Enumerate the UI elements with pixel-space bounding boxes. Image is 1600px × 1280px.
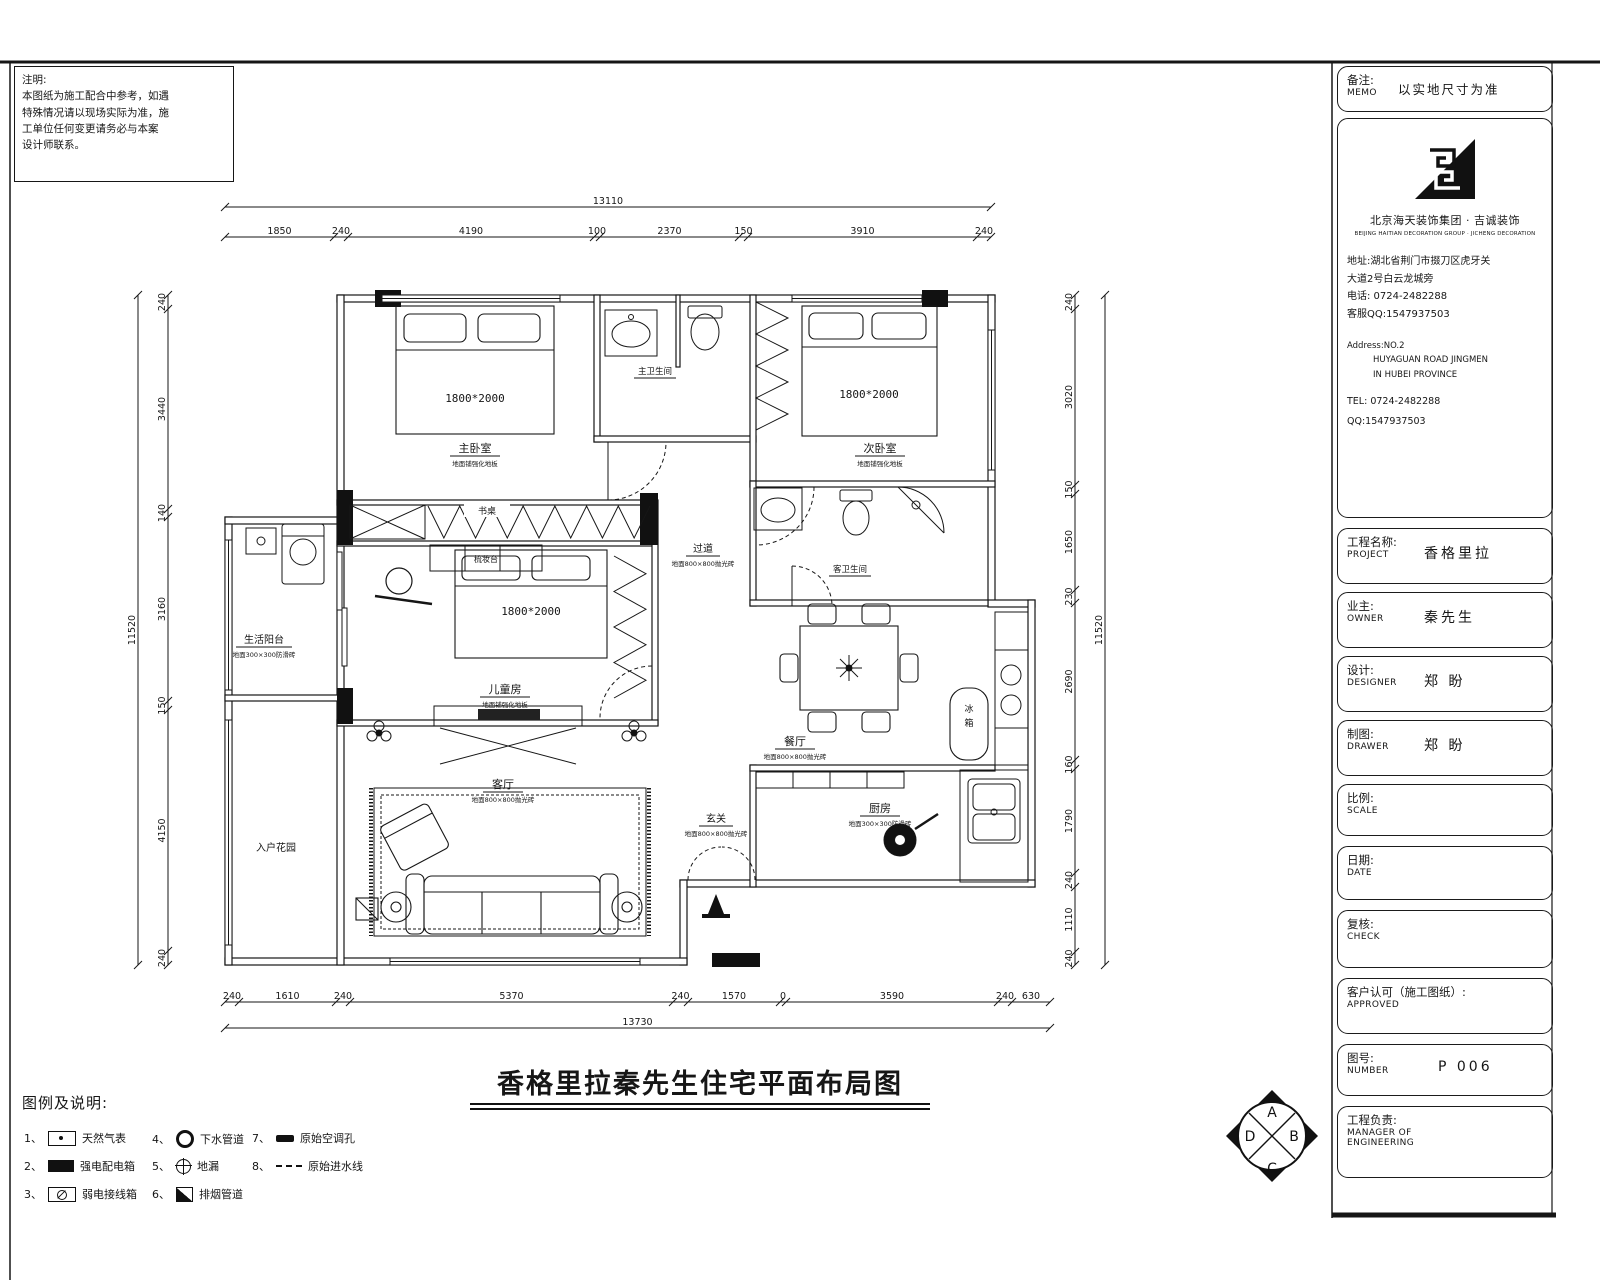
room-note-balcony: 地面300×300防滑砖 bbox=[233, 650, 296, 659]
note-line: 工单位任何变更请务必与本案 bbox=[22, 121, 226, 137]
legend-item-ac-hole: 7、 原始空调孔 bbox=[252, 1130, 355, 1146]
compass-letter-b: B bbox=[1289, 1129, 1299, 1145]
dim-label: 240 bbox=[1064, 293, 1075, 311]
dim-label: 1790 bbox=[1064, 809, 1075, 833]
dim-label: 240 bbox=[1064, 871, 1075, 889]
dim-label: 240 bbox=[996, 991, 1014, 1002]
legend-heading: 图例及说明: bbox=[22, 1092, 108, 1113]
second-bed bbox=[802, 306, 937, 436]
legend-label: 弱电接线箱 bbox=[82, 1186, 137, 1202]
dim-label: 630 bbox=[1022, 991, 1040, 1002]
entry-arrow bbox=[702, 894, 730, 918]
manager-label-en: ENGINEERING bbox=[1347, 1138, 1543, 1148]
room-label-master-bath: 主卫生间 bbox=[638, 366, 672, 377]
weak-current-icon bbox=[48, 1187, 76, 1202]
legend-label: 强电配电箱 bbox=[80, 1158, 135, 1174]
dim-label: 3020 bbox=[1064, 385, 1075, 409]
scale-label-cn: 比例: bbox=[1347, 790, 1543, 806]
dim-label: 3160 bbox=[157, 597, 168, 621]
dim-label: 4150 bbox=[157, 818, 168, 842]
dim-label: 13730 bbox=[622, 1017, 652, 1028]
legend-no: 6、 bbox=[152, 1186, 170, 1202]
dim-label: 230 bbox=[1064, 587, 1075, 605]
note-line: 特殊情况请以现场实际为准，施 bbox=[22, 105, 226, 121]
dresser-label: 梳妆台 bbox=[474, 554, 498, 564]
hall-cabinet bbox=[995, 612, 1028, 765]
compass-letter-a: A bbox=[1267, 1105, 1277, 1121]
room-label-second: 次卧室 bbox=[864, 441, 897, 455]
compass-letter-d: D bbox=[1245, 1129, 1256, 1145]
date-label-cn: 日期: bbox=[1347, 852, 1543, 868]
stool-mirror bbox=[375, 568, 432, 604]
bookshelf-desk bbox=[350, 505, 425, 539]
dim-label: 1570 bbox=[722, 991, 746, 1002]
room-label-master: 主卧室 bbox=[459, 441, 492, 455]
company-name-en: BEIJING HAITIAN DECORATION GROUP · JICHE… bbox=[1347, 231, 1543, 237]
drawer-value: 郑 盼 bbox=[1424, 735, 1465, 755]
dim-label: 2370 bbox=[657, 226, 681, 237]
dim-label: 5370 bbox=[499, 991, 523, 1002]
manager-box: 工程负责: MANAGER OF ENGINEERING bbox=[1337, 1106, 1553, 1178]
legend-label: 排烟管道 bbox=[199, 1186, 243, 1202]
sofa bbox=[406, 874, 618, 934]
legend-item-power-box: 2、 强电配电箱 bbox=[24, 1158, 135, 1174]
dim-label: 11520 bbox=[127, 615, 138, 645]
dim-label: 11520 bbox=[1094, 615, 1105, 645]
vent-duct-icon bbox=[176, 1187, 193, 1202]
scale-box: 比例: SCALE bbox=[1337, 784, 1553, 836]
wardrobe-zigzag bbox=[756, 302, 788, 430]
second-bed-size: 1800*2000 bbox=[839, 388, 899, 401]
company-phone: 电话: 0724-2482288 bbox=[1347, 288, 1543, 306]
designer-value: 郑 盼 bbox=[1424, 671, 1465, 691]
room-label-dining: 餐厅 bbox=[784, 734, 806, 748]
owner-box: 业主: OWNER 秦先生 bbox=[1337, 592, 1553, 648]
room-label-kids: 儿童房 bbox=[489, 682, 522, 696]
master-bath-fixtures bbox=[605, 306, 722, 356]
room-note-master: 地面铺强化地板 bbox=[452, 459, 498, 468]
approved-label-en: APPROVED bbox=[1347, 1000, 1543, 1010]
room-label-entry: 玄关 bbox=[706, 812, 726, 825]
floorplan-sheet: { "note": { "title": "注明:", "lines": ["本… bbox=[0, 0, 1600, 1280]
master-bed-size: 1800*2000 bbox=[445, 392, 505, 405]
kids-bed-size: 1800*2000 bbox=[501, 605, 561, 618]
owner-value: 秦先生 bbox=[1424, 607, 1475, 627]
room-note-second: 地面铺强化地板 bbox=[857, 459, 903, 468]
desk-label: 书桌 bbox=[478, 505, 496, 517]
dim-label: 2690 bbox=[1064, 669, 1075, 693]
floor-drain-icon bbox=[176, 1159, 191, 1174]
fridge-label-2: 箱 bbox=[964, 717, 973, 729]
legend-item-water-line: 8、 原始进水线 bbox=[252, 1158, 363, 1174]
company-logo bbox=[1414, 138, 1476, 200]
memo-box: 备注: MEMO 以实地尺寸为准 bbox=[1337, 66, 1553, 112]
dim-label: 1610 bbox=[275, 991, 299, 1002]
company-qq: 客服QQ:1547937503 bbox=[1347, 306, 1543, 324]
wardrobe-zigzag bbox=[614, 556, 646, 698]
legend-item-floor-drain: 5、 地漏 bbox=[152, 1158, 219, 1174]
legend-label: 下水管道 bbox=[200, 1131, 244, 1147]
ac-hole-icon bbox=[276, 1135, 294, 1142]
washing-machine bbox=[282, 524, 324, 584]
drain-pipe-icon bbox=[176, 1130, 194, 1148]
note-line: 本图纸为施工配合中参考，如遇 bbox=[22, 88, 226, 104]
wardrobe-zigzag bbox=[428, 506, 650, 538]
armchair bbox=[379, 802, 450, 871]
company-contact-en: TEL: 0724-2482288 QQ:1547937503 bbox=[1347, 392, 1543, 432]
dim-label: 0 bbox=[780, 991, 786, 1002]
compass-letter-c: C bbox=[1267, 1161, 1277, 1177]
approved-label-cn: 客户认可（施工图纸）: bbox=[1347, 984, 1543, 1000]
dim-label: 140 bbox=[157, 504, 168, 522]
room-label-kitchen: 厨房 bbox=[869, 802, 891, 815]
check-label-en: CHECK bbox=[1347, 932, 1543, 942]
dim-label: 1650 bbox=[1064, 530, 1075, 554]
orientation-compass-icon: A B C D bbox=[1222, 1086, 1322, 1186]
legend-no: 8、 bbox=[252, 1158, 270, 1174]
gas-meter-icon bbox=[48, 1131, 76, 1146]
room-note-kitchen: 地面300×300防滑砖 bbox=[849, 819, 912, 828]
dim-label: 4190 bbox=[459, 226, 483, 237]
room-label-guest-bath: 客卫生间 bbox=[833, 564, 867, 575]
power-distribution-icon bbox=[48, 1160, 74, 1172]
room-label-living: 客厅 bbox=[492, 777, 514, 791]
company-addr-en-line: HUYAGUAN ROAD JINGMEN bbox=[1347, 353, 1543, 367]
company-addr-line: 地址:湖北省荆门市掇刀区虎牙关 bbox=[1347, 253, 1543, 271]
dim-label: 240 bbox=[223, 991, 241, 1002]
company-tel-en: TEL: 0724-2482288 bbox=[1347, 392, 1543, 412]
dim-label: 3590 bbox=[880, 991, 904, 1002]
company-address-en: Address:NO.2 HUYAGUAN ROAD JINGMEN IN HU… bbox=[1347, 339, 1543, 382]
legend-item-weak-box: 3、 弱电接线箱 bbox=[24, 1186, 137, 1202]
dim-label: 150 bbox=[734, 226, 752, 237]
company-name: 北京海天装饰集团 · 吉诚装饰 bbox=[1347, 212, 1543, 228]
side-tables bbox=[356, 892, 642, 922]
check-box: 复核: CHECK bbox=[1337, 910, 1553, 968]
dim-label: 100 bbox=[588, 226, 606, 237]
fridge-label-1: 冰 bbox=[964, 703, 973, 715]
legend-no: 3、 bbox=[24, 1186, 42, 1202]
drawer-box: 制图: DRAWER 郑 盼 bbox=[1337, 720, 1553, 776]
dim-label: 240 bbox=[157, 293, 168, 311]
tv-wall bbox=[434, 706, 582, 764]
room-label-balcony: 生活阳台 bbox=[244, 633, 284, 646]
project-box: 工程名称: PROJECT 香格里拉 bbox=[1337, 528, 1553, 584]
drawing-title: 香格里拉秦先生住宅平面布局图 bbox=[470, 1062, 930, 1110]
dim-label: 150 bbox=[1064, 480, 1075, 498]
number-box: 图号: NUMBER P 006 bbox=[1337, 1044, 1553, 1096]
room-note-dining: 地面800×800抛光砖 bbox=[764, 752, 827, 761]
legend-no: 2、 bbox=[24, 1158, 42, 1174]
company-address: 地址:湖北省荆门市掇刀区虎牙关 大道2号白云龙城旁 电话: 0724-24822… bbox=[1347, 253, 1543, 323]
dining-set bbox=[780, 604, 918, 732]
legend-item-vent-duct: 6、 排烟管道 bbox=[152, 1186, 243, 1202]
project-value: 香格里拉 bbox=[1424, 543, 1492, 563]
legend-item-gas-meter: 1、 天然气表 bbox=[24, 1130, 126, 1146]
dim-label: 13110 bbox=[593, 196, 623, 207]
dim-label: 240 bbox=[332, 226, 350, 237]
number-value: P 006 bbox=[1438, 1059, 1493, 1075]
note-box: 注明: 本图纸为施工配合中参考，如遇 特殊情况请以现场实际为准，施 工单位任何变… bbox=[14, 66, 234, 182]
scale-label-en: SCALE bbox=[1347, 806, 1543, 816]
memo-value: 以实地尺寸为准 bbox=[1398, 79, 1500, 98]
room-note-hall: 地面800×800抛光砖 bbox=[672, 559, 735, 568]
company-box: 北京海天装饰集团 · 吉诚装饰 BEIJING HAITIAN DECORATI… bbox=[1337, 118, 1553, 518]
dim-label: 240 bbox=[157, 949, 168, 967]
company-addr-en-line: IN HUBEI PROVINCE bbox=[1347, 368, 1543, 382]
designer-box: 设计: DESIGNER 郑 盼 bbox=[1337, 656, 1553, 712]
approved-box: 客户认可（施工图纸）: APPROVED bbox=[1337, 978, 1553, 1034]
date-box: 日期: DATE bbox=[1337, 846, 1553, 900]
room-note-kids: 地面铺强化地板 bbox=[482, 700, 528, 709]
manager-label-cn: 工程负责: bbox=[1347, 1112, 1543, 1128]
legend-no: 5、 bbox=[152, 1158, 170, 1174]
legend-label: 地漏 bbox=[197, 1158, 219, 1174]
legend-label: 天然气表 bbox=[82, 1130, 126, 1146]
company-qq-en: QQ:1547937503 bbox=[1347, 412, 1543, 432]
room-note-living: 地面800×800抛光砖 bbox=[472, 795, 535, 804]
check-label-cn: 复核: bbox=[1347, 916, 1543, 932]
note-line: 设计师联系。 bbox=[22, 137, 226, 153]
legend-no: 1、 bbox=[24, 1130, 42, 1146]
company-addr-en-line: Address:NO.2 bbox=[1347, 339, 1543, 353]
legend-item-drain-pipe: 4、 下水管道 bbox=[152, 1130, 244, 1148]
dim-label: 3910 bbox=[850, 226, 874, 237]
note-title: 注明: bbox=[22, 72, 226, 88]
kids-bed bbox=[455, 550, 607, 658]
manager-label-en: MANAGER OF bbox=[1347, 1128, 1543, 1138]
dim-label: 160 bbox=[1064, 755, 1075, 773]
legend-no: 4、 bbox=[152, 1131, 170, 1147]
company-addr-line: 大道2号白云龙城旁 bbox=[1347, 271, 1543, 289]
dim-label: 1850 bbox=[267, 226, 291, 237]
legend-label: 原始空调孔 bbox=[300, 1130, 355, 1146]
legend-label: 原始进水线 bbox=[308, 1158, 363, 1174]
date-label-en: DATE bbox=[1347, 868, 1543, 878]
dim-label: 240 bbox=[334, 991, 352, 1002]
guest-bath-fixtures bbox=[754, 487, 944, 535]
dim-label: 240 bbox=[671, 991, 689, 1002]
master-bed bbox=[396, 306, 554, 434]
legend-no: 7、 bbox=[252, 1130, 270, 1146]
room-label-garden: 入户花园 bbox=[256, 841, 296, 854]
dim-label: 240 bbox=[1064, 949, 1075, 967]
dim-label: 240 bbox=[975, 226, 993, 237]
room-label-hall: 过道 bbox=[693, 542, 713, 555]
dim-label: 1110 bbox=[1064, 907, 1075, 931]
water-line-icon bbox=[276, 1165, 302, 1167]
dim-label: 150 bbox=[157, 696, 168, 714]
dim-label: 3440 bbox=[157, 397, 168, 421]
room-note-entry: 地面800×800抛光砖 bbox=[685, 829, 748, 838]
centerpiece bbox=[836, 655, 862, 681]
gas-meter bbox=[246, 528, 276, 554]
